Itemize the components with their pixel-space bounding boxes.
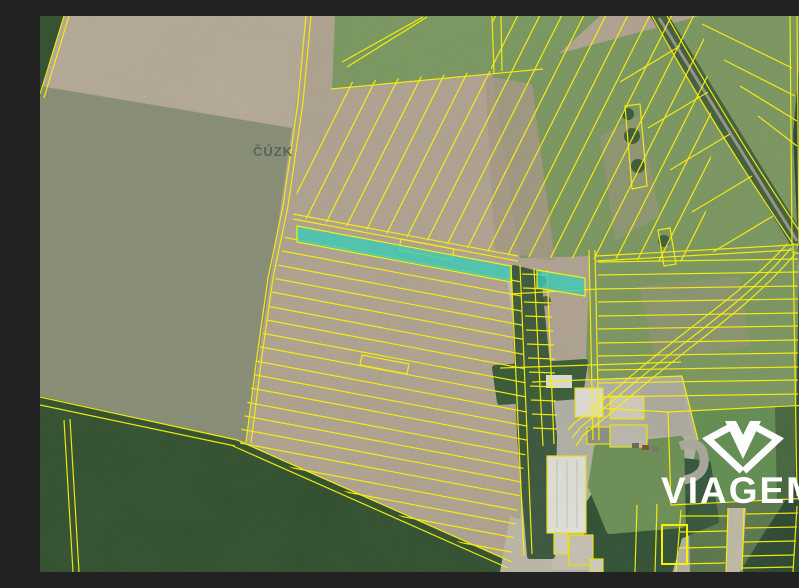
provider-watermark: ČÚZK bbox=[253, 144, 293, 159]
brand-watermark-text: VIAGEM bbox=[661, 470, 799, 511]
aerial-map: ČÚZK VIAGEM bbox=[40, 16, 799, 572]
cadastral-map-figure[interactable]: ČÚZK VIAGEM bbox=[40, 16, 799, 572]
